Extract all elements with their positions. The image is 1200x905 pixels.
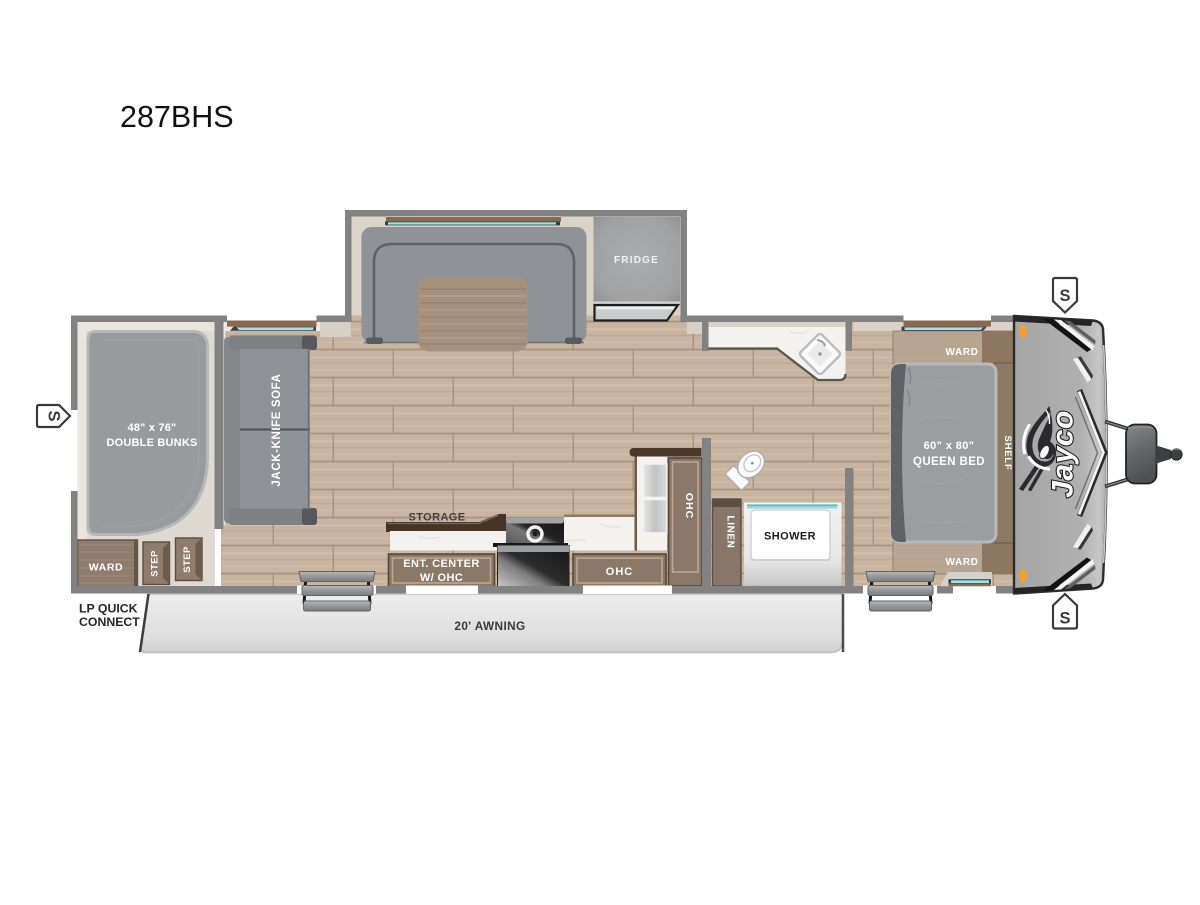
svg-text:S: S (1059, 287, 1070, 305)
svg-text:QUEEN BED: QUEEN BED (913, 456, 985, 468)
svg-text:48" x 76": 48" x 76" (128, 422, 177, 434)
svg-text:60" x 80": 60" x 80" (924, 440, 975, 452)
svg-text:STORAGE: STORAGE (409, 512, 466, 524)
svg-text:ENT. CENTER: ENT. CENTER (403, 558, 480, 570)
svg-text:WARD: WARD (946, 557, 979, 568)
svg-text:287BHS: 287BHS (120, 100, 234, 134)
svg-text:SHELF: SHELF (1002, 435, 1013, 470)
svg-text:WARD: WARD (89, 562, 123, 574)
svg-text:SHOWER: SHOWER (764, 531, 816, 543)
svg-text:20' AWNING: 20' AWNING (454, 619, 525, 633)
svg-text:S: S (45, 410, 63, 421)
svg-text:JACK-KNIFE SOFA: JACK-KNIFE SOFA (271, 373, 283, 486)
svg-text:STEP: STEP (150, 550, 161, 577)
svg-text:OHC: OHC (606, 566, 633, 578)
svg-text:CONNECT: CONNECT (79, 615, 140, 629)
svg-text:LINEN: LINEN (725, 516, 736, 549)
svg-text:OHC: OHC (683, 493, 695, 519)
svg-text:STEP: STEP (182, 546, 193, 573)
svg-text:DOUBLE BUNKS: DOUBLE BUNKS (106, 437, 197, 449)
svg-text:LP QUICK: LP QUICK (79, 602, 138, 616)
svg-text:WARD: WARD (946, 347, 979, 358)
svg-text:S: S (1059, 610, 1070, 628)
svg-text:Jayco: Jayco (1047, 410, 1080, 498)
svg-text:FRIDGE: FRIDGE (614, 255, 659, 266)
svg-text:W/ OHC: W/ OHC (420, 572, 463, 584)
